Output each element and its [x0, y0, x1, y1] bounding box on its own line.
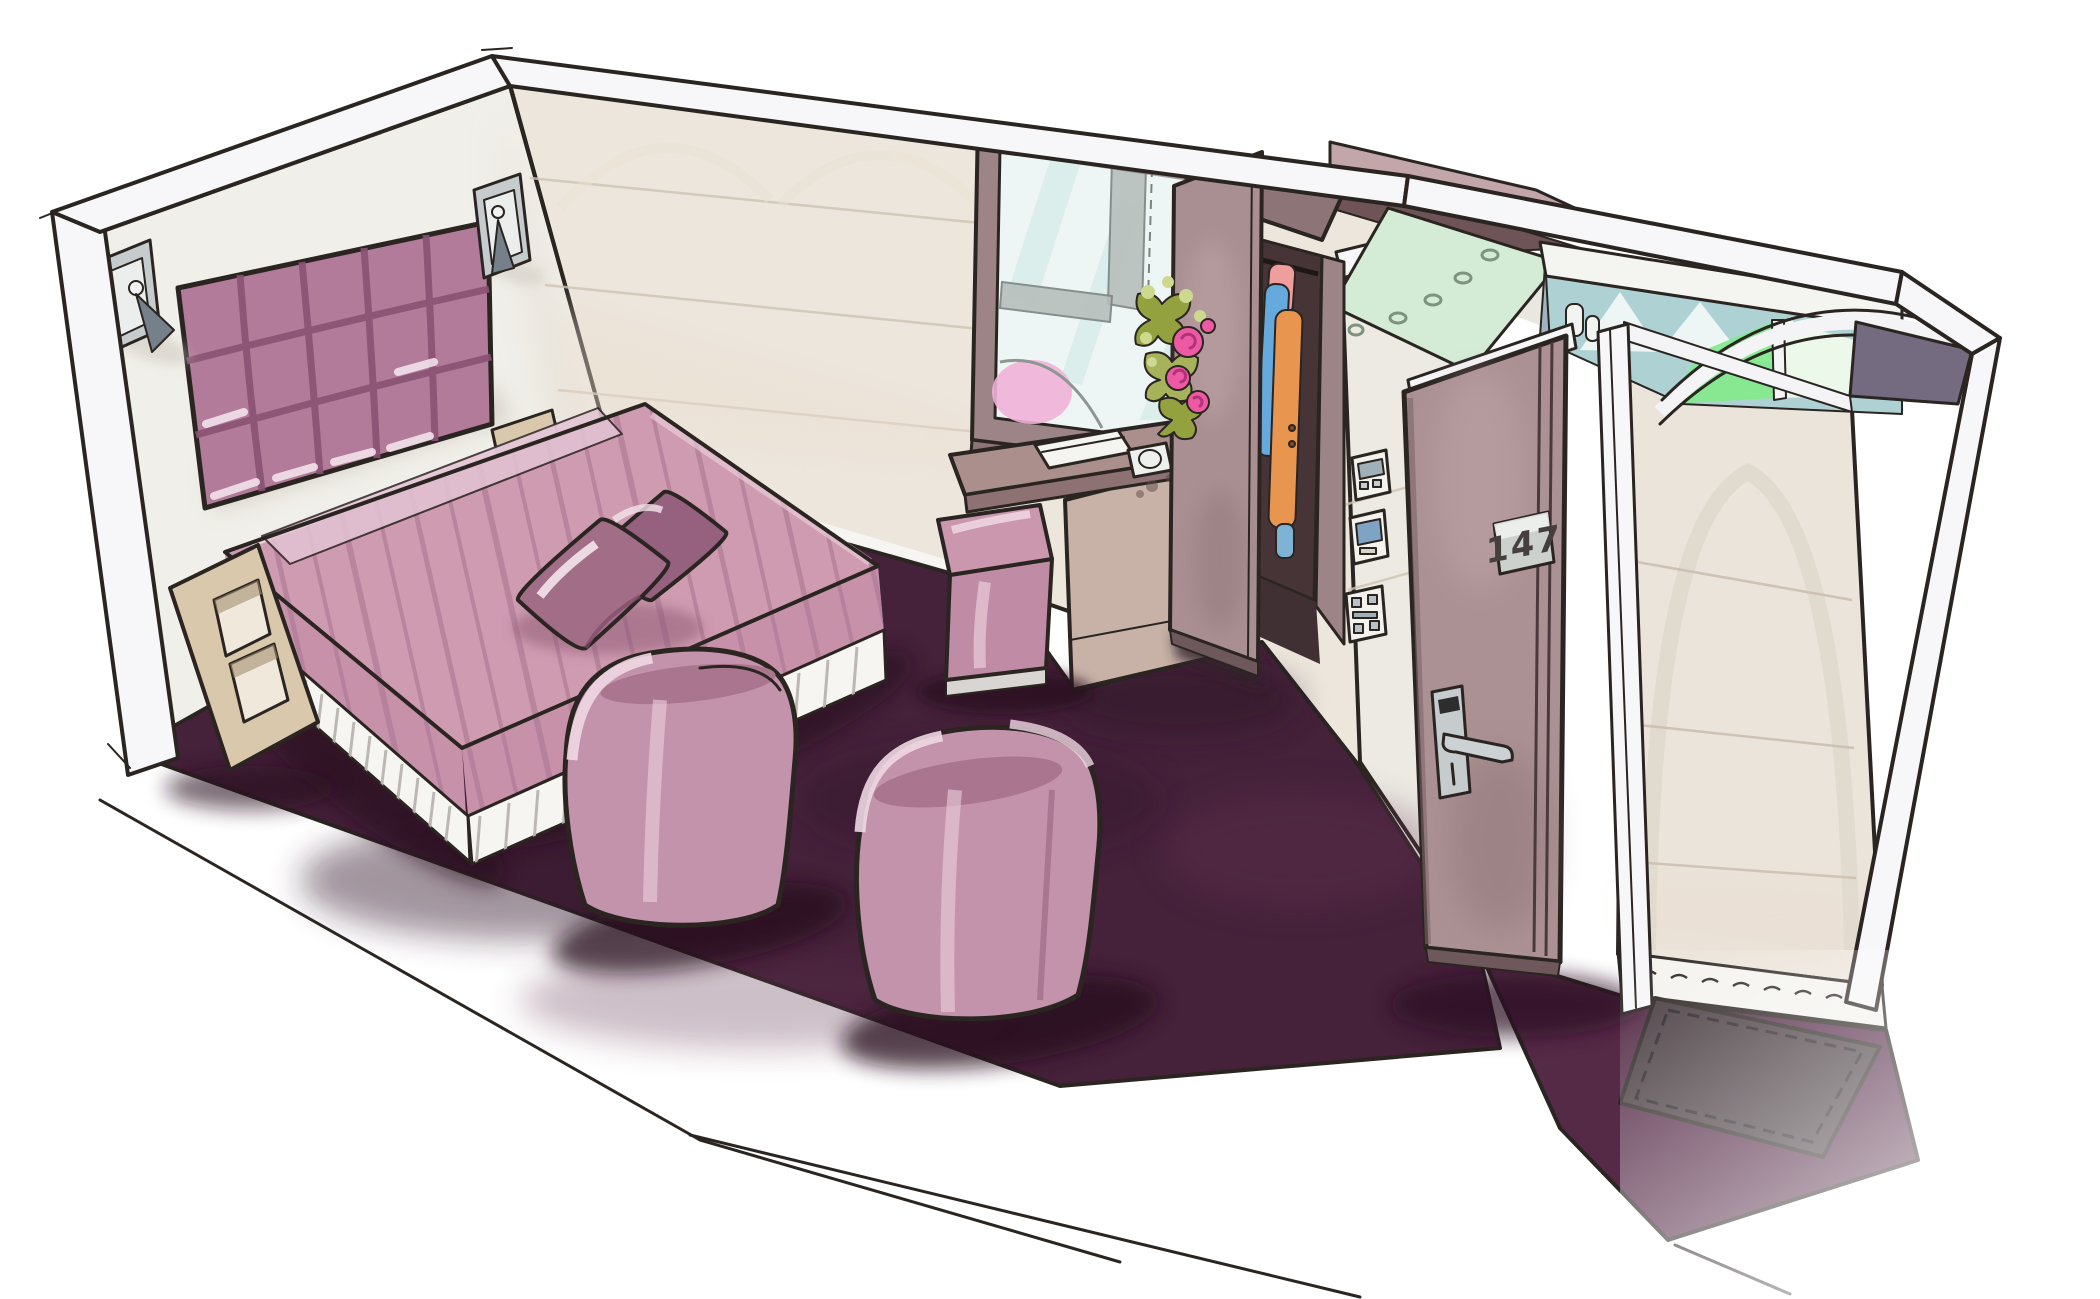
switch-panel-thermostat: [1350, 510, 1388, 564]
switch-panel-card-reader: [1352, 450, 1390, 500]
cube-pouf: [938, 505, 1052, 696]
tub-armchair-right: [856, 724, 1099, 1019]
door-floor-shadow: [1390, 973, 1640, 1037]
open-wardrobe: [1170, 150, 1344, 690]
sketch-canvas: 147: [0, 0, 2100, 1299]
keyhole: [1452, 764, 1454, 784]
hotel-room-sketch: 147: [0, 0, 2100, 1299]
wall-switch-panels: [1346, 450, 1390, 642]
wardrobe-side: [1316, 256, 1344, 644]
paper-fade: [1620, 950, 2100, 1299]
door-leaf: [1404, 336, 1566, 976]
service-dial: [1128, 443, 1172, 477]
switch-panel-sockets: [1346, 586, 1386, 642]
window-view-pink-shape: [992, 360, 1072, 424]
tub-armchair-left: [565, 649, 796, 925]
